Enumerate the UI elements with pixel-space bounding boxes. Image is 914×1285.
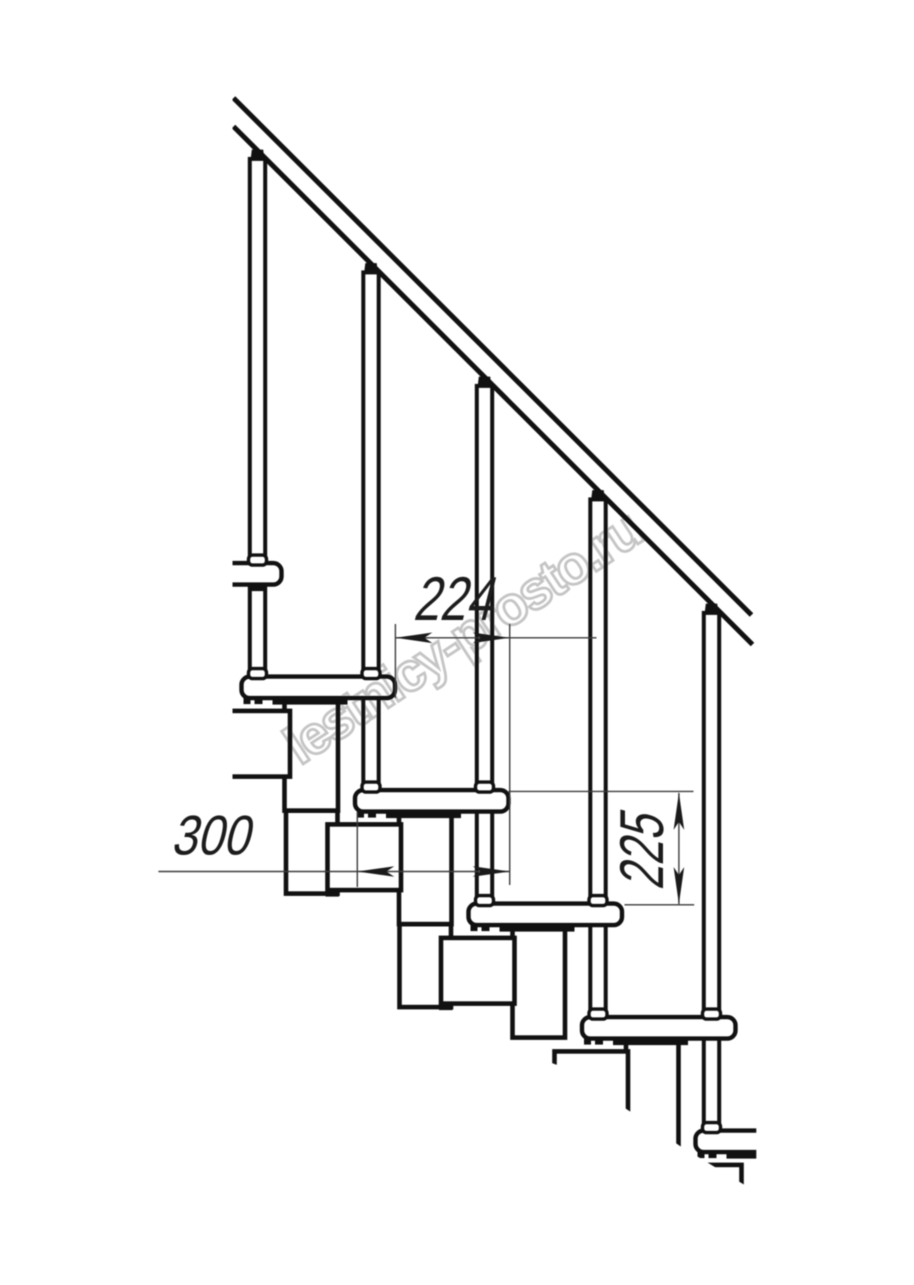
svg-text:300: 300 — [167, 805, 260, 867]
